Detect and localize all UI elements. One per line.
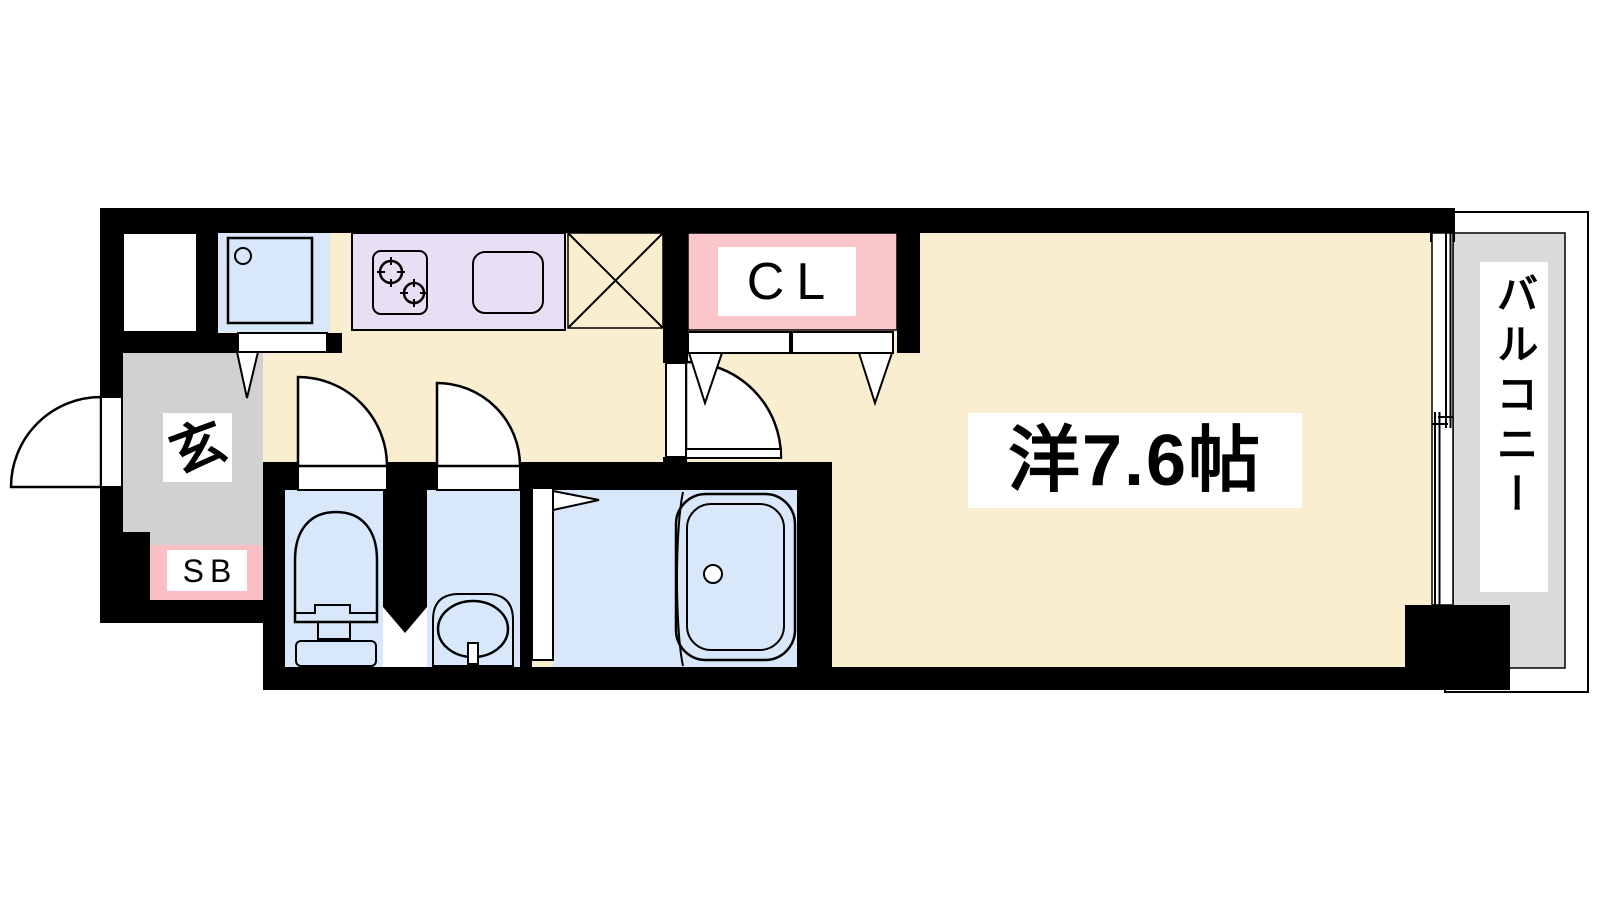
wall-entrance-notch: [123, 532, 150, 600]
wall-fridge-closet: [663, 233, 688, 363]
wall-ps-right: [197, 233, 218, 333]
closet-door-left: [688, 332, 790, 353]
closet-door-right: [792, 332, 893, 353]
main-room-label: 洋7.6帖: [968, 413, 1302, 508]
washer-opening: [238, 333, 327, 352]
washbasin-faucet-icon: [468, 643, 478, 664]
floor-plan-drawing: [0, 0, 1600, 900]
room-door-open-leaf: [686, 449, 781, 458]
bath-door-leaf: [532, 488, 553, 660]
wall-left-upper: [100, 208, 123, 353]
floor-plan: 玄 SB CL 洋7.6帖 バルコニー: [0, 0, 1600, 900]
wall-washroom-bath: [520, 490, 532, 668]
wall-water-left: [263, 462, 285, 690]
shoe-box-label: SB: [167, 550, 247, 591]
wall-entrance-bottom: [100, 600, 263, 623]
bathtub-drain-icon: [704, 565, 722, 583]
entrance-label: 玄: [163, 413, 232, 482]
wall-top: [100, 208, 1437, 233]
balcony-label: バルコニー: [1480, 262, 1548, 592]
wall-window-bottom-pillar: [1405, 605, 1510, 690]
wall-toilet-washroom: [383, 490, 427, 607]
entrance-label-text: 玄: [163, 413, 232, 482]
entrance-door-leaf: [101, 397, 122, 487]
wall-bottom: [263, 667, 1437, 690]
wall-bath-right: [797, 462, 832, 690]
outside-patch: [100, 623, 263, 690]
closet-label: CL: [718, 247, 856, 316]
wall-under-room-door: [663, 457, 687, 490]
entrance-door-arc-icon: [11, 397, 101, 487]
room-door-leaf: [666, 363, 686, 457]
wall-closet-right: [897, 233, 920, 353]
pipe-space-box: [123, 233, 197, 332]
